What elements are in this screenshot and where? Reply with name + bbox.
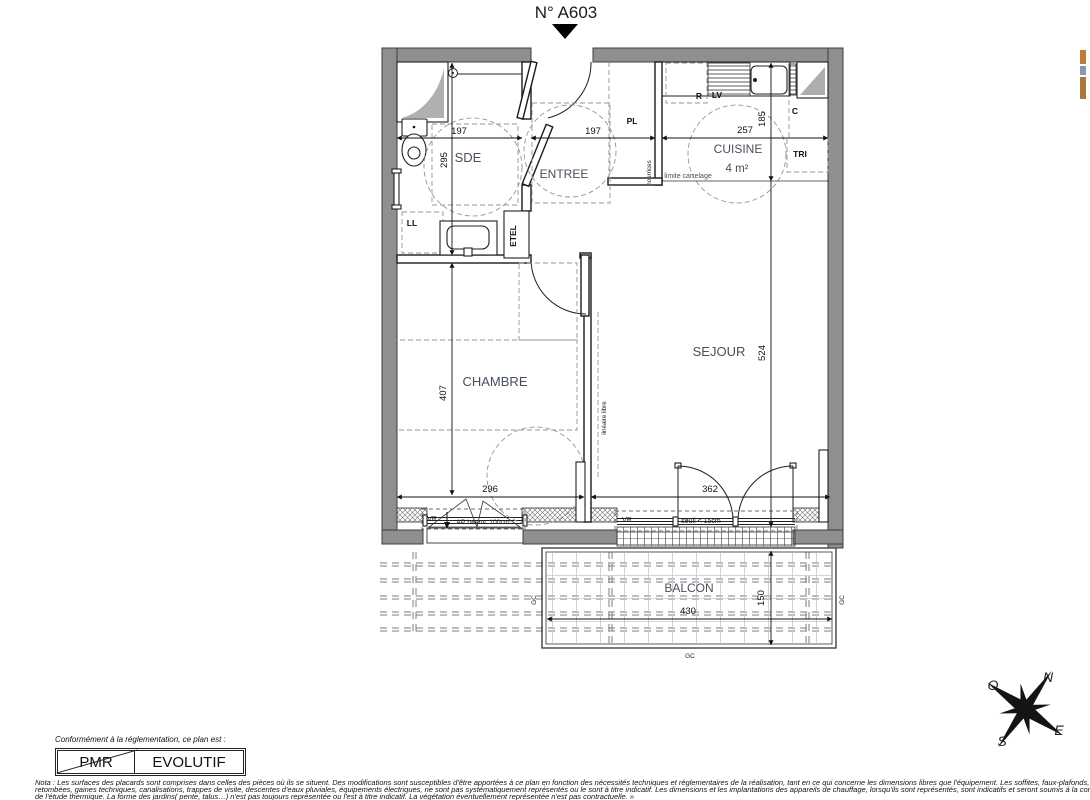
room-area-kitchen: 4 m² <box>726 163 749 175</box>
compass-west: O <box>988 677 999 693</box>
dim-balcony-width: 430 <box>680 606 696 617</box>
balcony <box>542 548 836 648</box>
ann-tiling-limit: limite carrelage <box>664 173 712 180</box>
compass-rose: N E S O <box>960 644 1089 774</box>
dim-entry-width: 197 <box>585 126 601 137</box>
room-label-kitchen: CUISINE <box>714 142 763 156</box>
dim-sde-height: 295 <box>439 152 450 168</box>
compass-north: N <box>1043 669 1054 685</box>
window-sill <box>427 528 523 543</box>
sill-hatch-2 <box>522 508 617 522</box>
compass-south: S <box>997 733 1007 749</box>
wall-top-right <box>593 48 843 62</box>
plan-title: N° A603 <box>535 3 598 22</box>
wall-right <box>828 48 843 548</box>
ann-vr-bedroom: VR <box>427 516 437 523</box>
room-label-sde: SDE <box>455 150 482 165</box>
washbasin <box>440 221 497 256</box>
ann-threshold: seuil < 15cm <box>681 518 721 525</box>
nota-line-3: de l'étude thermique. La forme des jardi… <box>35 793 1085 800</box>
wall-top-left <box>382 48 531 62</box>
dim-kitchen-height: 185 <box>757 111 768 127</box>
dim-kitchen-width: 257 <box>737 125 753 136</box>
room-label-living: SEJOUR <box>693 344 746 359</box>
radiator-living <box>819 450 828 522</box>
room-label-balcony: BALCON <box>664 581 713 595</box>
closet-wall <box>608 178 662 185</box>
entrance-marker-icon <box>552 24 578 39</box>
wall-bottom-outer-3 <box>793 530 843 544</box>
conformity-table: PMR EVOLUTIF <box>55 748 246 776</box>
dim-bedroom-height: 407 <box>438 385 449 401</box>
compass-star-diagonal <box>995 679 1055 739</box>
ann-window-height: AP h=env. 100cm <box>456 519 510 526</box>
ann-gc-left: GC <box>531 595 538 605</box>
threshold-decking <box>617 527 795 546</box>
room-label-bedroom: CHAMBRE <box>462 374 527 389</box>
living-room-french-doors <box>675 463 796 521</box>
evolutif-label: EVOLUTIF <box>152 754 225 771</box>
ann-nourrices: nourrices <box>646 160 653 185</box>
kitchen-partition <box>655 62 662 185</box>
entry-hall <box>524 62 616 203</box>
tag-recycling: TRI <box>793 149 807 159</box>
tag-dishwasher: LV <box>712 90 723 100</box>
floor-plan-page: N° A603 <box>0 0 1090 800</box>
dim-sde-width: 197 <box>451 126 467 137</box>
floor-plan-drawing: N° A603 <box>0 0 1090 800</box>
evolutif-box: EVOLUTIF <box>135 751 243 773</box>
toilet <box>402 119 427 166</box>
pmr-box: PMR <box>58 751 135 773</box>
ann-gc-right: GC <box>839 595 846 605</box>
dim-living-height: 524 <box>757 345 768 361</box>
ann-free-wall: linéaire libre <box>601 401 608 435</box>
bedroom-door <box>531 253 591 316</box>
tag-closet: PL <box>627 116 638 126</box>
dim-living-width: 362 <box>702 484 718 495</box>
interior-partitions <box>397 62 662 522</box>
wall-bottom-outer-1 <box>382 530 423 544</box>
balcony-tile-grid <box>547 553 831 643</box>
tag-washer: LL <box>407 218 417 228</box>
wardrobe-zone <box>519 263 577 340</box>
wall-left <box>382 48 397 543</box>
ann-gc-bottom: GC <box>685 653 695 660</box>
bedroom-living-extras <box>392 263 828 525</box>
faucet-icon <box>753 78 757 82</box>
exterior-walls <box>382 48 843 548</box>
page-edge-marker <box>1080 50 1086 99</box>
dim-balcony-depth: 150 <box>756 590 767 606</box>
ann-vr-living: VR <box>622 517 632 524</box>
radiator-bedroom <box>576 462 585 522</box>
compass-east: E <box>1054 722 1064 738</box>
room-label-entry: ENTREE <box>540 167 589 181</box>
wall-bottom-outer-2 <box>523 530 617 544</box>
nota-text: Nota : Les surfaces des placards sont co… <box>35 779 1085 800</box>
tag-fridge: R <box>696 91 702 101</box>
tag-heater: C <box>792 106 798 116</box>
dim-bedroom-width: 296 <box>482 484 498 495</box>
tag-etel: ETEL <box>508 225 518 247</box>
conformity-intro: Conformément à la réglementation, ce pla… <box>55 735 226 744</box>
